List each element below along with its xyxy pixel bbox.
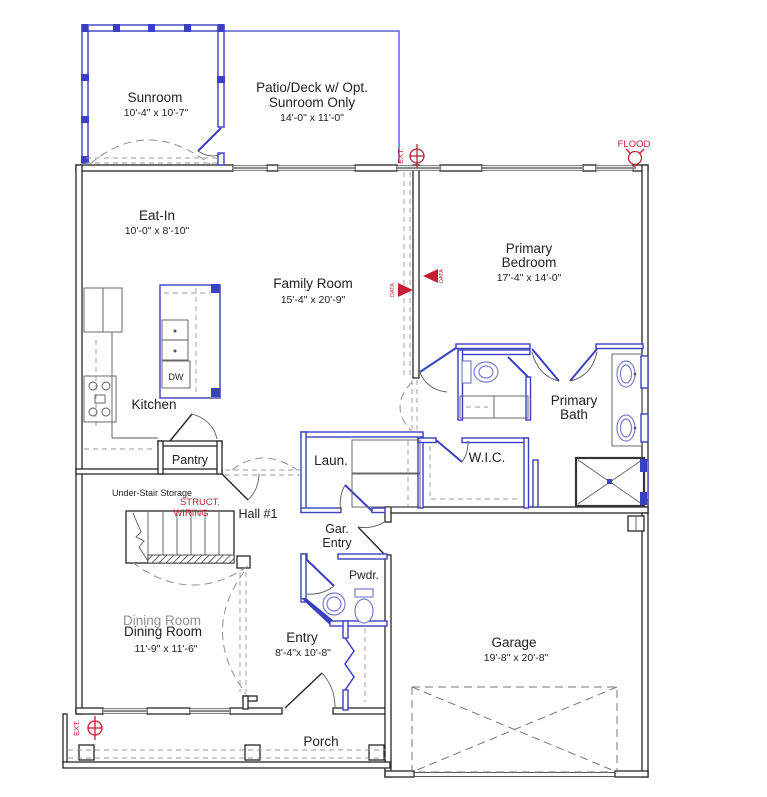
primary-bath-label-1: Primary — [551, 393, 598, 408]
kitchen-label: Kitchen — [131, 397, 176, 412]
range — [84, 376, 116, 422]
laundry-label: Laun. — [314, 453, 348, 468]
bedroom-door — [420, 348, 456, 372]
floor-plan-drawing: FLOOD EXT. EXT. STRUCT. WIRING DATA DATA… — [0, 0, 767, 797]
porch-structure — [63, 714, 390, 768]
struct-wiring-line1: STRUCT. — [180, 497, 220, 508]
gar-entry-label-2: Entry — [322, 536, 352, 550]
bath-door-left — [532, 349, 559, 381]
struct-wiring-line2: WIRING — [173, 508, 208, 519]
primary-bath-label-2: Bath — [560, 407, 588, 422]
kitchen-fixtures — [84, 284, 220, 449]
garage-label: Garage — [491, 635, 536, 650]
entry-dims: 8'-4"x 10'-8" — [275, 647, 331, 659]
ext-top-label: EXT. — [396, 148, 405, 164]
bath-door-right — [570, 349, 597, 381]
primary-bedroom-label-2: Bedroom — [502, 255, 557, 270]
sunroom-door — [198, 128, 221, 151]
sunroom-label: Sunroom — [128, 90, 183, 105]
primary-suite-walls — [418, 344, 648, 508]
data-jack-icon — [423, 269, 438, 283]
window — [190, 709, 230, 714]
gar-entry-label-1: Gar. — [325, 522, 349, 536]
flood-light-icon — [629, 152, 642, 165]
primary-bedroom-label-1: Primary — [506, 241, 553, 256]
washer — [352, 440, 420, 473]
dining-room-dims: 11'-9" x 11'-6" — [134, 643, 197, 655]
garage-dims: 19'-8" x 20'-8" — [484, 652, 549, 664]
garage-entry-door — [358, 527, 385, 555]
wic-label: W.I.C. — [469, 450, 506, 465]
room-labels: Sunroom 10'-4" x 10'-7" Patio/Deck w/ Op… — [112, 80, 598, 749]
hall1-label: Hall #1 — [239, 507, 278, 521]
window — [482, 166, 583, 171]
data-left-label: DATA — [390, 283, 396, 297]
sunroom-dims: 10'-4" x 10'-7" — [124, 107, 189, 119]
dining-room-label: Dining Room — [124, 624, 202, 639]
toilet-room-door — [508, 357, 528, 377]
toilet — [462, 361, 471, 383]
window — [103, 709, 147, 714]
entry-label: Entry — [286, 630, 318, 645]
pantry-label: Pantry — [172, 453, 209, 467]
primary-bedroom-dims: 17'-4" x 14'-0" — [497, 272, 562, 284]
flood-label: FLOOD — [618, 139, 651, 150]
patio-label-1: Patio/Deck w/ Opt. — [256, 80, 368, 95]
entry-door — [285, 673, 322, 708]
pantry-wall — [158, 441, 222, 446]
dishwasher-label: DW — [169, 372, 184, 382]
powder-label: Pwdr. — [349, 568, 379, 582]
eatin-dims: 10'-0" x 8'-10" — [125, 225, 190, 237]
powder-toilet — [355, 589, 373, 597]
eatin-label: Eat-In — [139, 208, 175, 223]
patio-label-2: Sunroom Only — [269, 95, 356, 110]
data-right-label: DATA — [439, 269, 445, 283]
porch-label: Porch — [303, 734, 338, 749]
window — [233, 166, 267, 171]
laundry-walls — [301, 432, 423, 513]
window — [397, 166, 440, 171]
window — [596, 166, 633, 171]
closet-bifold-door — [345, 638, 354, 690]
powder-door — [306, 559, 334, 586]
column-post — [237, 556, 250, 568]
wic-door — [436, 440, 462, 462]
floor-plan-page: FLOOD EXT. EXT. STRUCT. WIRING DATA DATA… — [0, 0, 767, 797]
family-room-label: Family Room — [273, 276, 353, 291]
data-jack-icon — [398, 283, 413, 297]
patio-dims: 14'-0" x 11'-0" — [280, 112, 344, 124]
pantry-door — [170, 414, 192, 441]
storage-door — [222, 474, 248, 500]
under-stair-storage-label: Under-Stair Storage — [112, 488, 192, 498]
window — [278, 166, 355, 171]
family-room-dims: 15'-4" x 20'-9" — [281, 294, 346, 306]
ext-bottom-label: EXT. — [72, 720, 81, 736]
